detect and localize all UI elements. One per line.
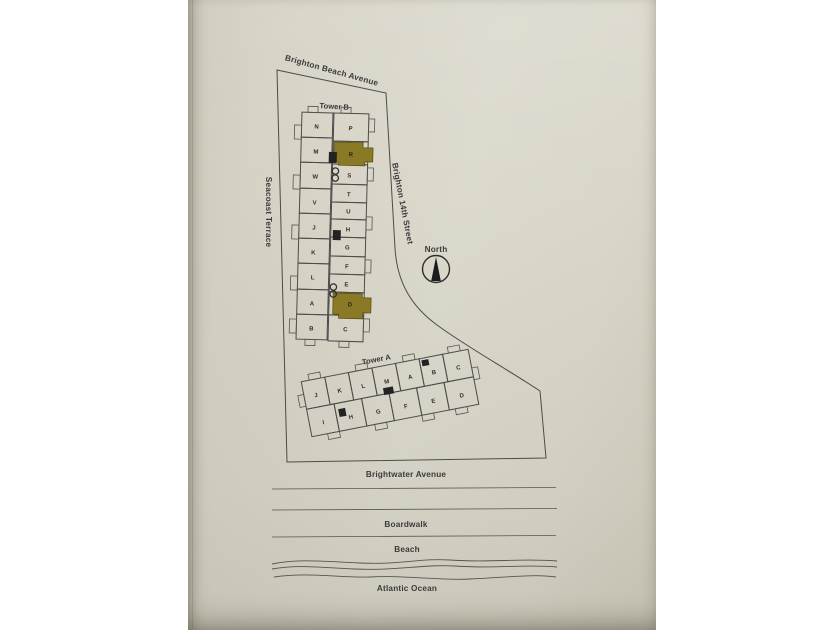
unit-label: W — [312, 174, 318, 180]
balcony — [472, 367, 480, 380]
unit-label: L — [311, 275, 315, 281]
unit-label: C — [343, 327, 348, 333]
tower-b-label: Tower B — [319, 101, 349, 112]
tower-a-plan: Tower A — [293, 336, 486, 443]
unit-label: F — [345, 264, 349, 270]
balcony — [305, 339, 315, 345]
unit-label: S — [347, 173, 351, 179]
shoreline-wave — [274, 575, 556, 579]
unit-label: T — [347, 192, 351, 198]
unit-label: K — [337, 388, 343, 395]
unit-label: H — [348, 415, 353, 422]
elevator-mark — [333, 230, 341, 240]
north-compass: North — [423, 245, 450, 283]
unit-label: N — [314, 124, 318, 130]
beach-label: Beach — [394, 545, 420, 554]
tower-b-plan: Tower B — [289, 100, 376, 348]
tower-b-core-marks — [325, 152, 343, 298]
unit-label: J — [312, 225, 315, 231]
balcony — [328, 431, 341, 439]
balcony — [363, 319, 369, 332]
unit-label: G — [345, 245, 350, 251]
north-label: North — [425, 245, 448, 254]
balcony — [339, 341, 349, 347]
unit-label: P — [348, 126, 352, 132]
balcony — [455, 407, 468, 415]
balcony — [292, 225, 299, 239]
unit-label: K — [311, 250, 316, 256]
unit-label: V — [312, 200, 316, 206]
elevator-mark — [338, 408, 346, 417]
balcony — [293, 175, 300, 189]
unit-label: A — [408, 374, 414, 381]
unit-label: U — [346, 209, 350, 215]
tower-a-bottom-row — [307, 377, 479, 437]
street-line — [272, 509, 557, 511]
balcony — [365, 260, 371, 273]
boardwalk-label: Boardwalk — [384, 520, 427, 529]
balcony — [308, 106, 318, 112]
stair-mark — [332, 175, 339, 182]
ocean-label: Atlantic Ocean — [377, 584, 437, 593]
balcony — [402, 354, 415, 362]
balcony — [290, 276, 297, 290]
boardwalk-line — [272, 536, 556, 538]
unit-label: B — [309, 326, 314, 332]
street-label-seacoast-terrace: Seacoast Terrace — [264, 177, 273, 248]
balcony — [308, 372, 321, 380]
unit-label: D — [459, 393, 465, 400]
unit-label: A — [310, 301, 315, 307]
site-plan-drawing: Brighton Beach Avenue Brighton 14th Stre… — [0, 0, 840, 630]
unit-label: L — [361, 384, 366, 391]
stair-mark — [330, 284, 337, 291]
balcony — [422, 413, 435, 421]
tower-b-left-unit-labels: N M W V J K L A B — [308, 124, 319, 332]
balcony — [366, 217, 372, 230]
unit-label: F — [404, 404, 409, 411]
unit-label: I — [322, 420, 325, 426]
balcony — [294, 125, 301, 139]
waterfront: Boardwalk Beach Atlantic Ocean — [272, 488, 557, 594]
balcony — [447, 345, 460, 353]
unit-label: C — [456, 365, 462, 372]
unit-label: J — [314, 393, 318, 400]
shoreline-wave — [272, 566, 557, 570]
balcony — [367, 168, 373, 181]
shoreline-wave — [272, 560, 557, 564]
street-label-brighton-beach-avenue: Brighton Beach Avenue — [284, 53, 380, 87]
balcony — [289, 319, 296, 333]
unit-label: E — [344, 282, 348, 288]
stair-mark — [332, 168, 339, 175]
compass-needle-icon — [431, 257, 441, 281]
elevator-mark — [383, 386, 394, 395]
balcony — [375, 422, 388, 430]
elevator-mark — [421, 359, 429, 366]
street-label-brightwater-avenue: Brightwater Avenue — [366, 470, 447, 479]
elevator-mark — [329, 152, 337, 163]
balcony — [298, 394, 306, 407]
unit-label: E — [431, 399, 436, 406]
street-line — [272, 488, 556, 490]
balcony — [368, 119, 374, 132]
listing-photo-page: Brighton Beach Avenue Brighton 14th Stre… — [0, 0, 840, 630]
unit-label: M — [384, 379, 390, 386]
unit-label: H — [346, 227, 350, 233]
unit-label: B — [431, 370, 437, 377]
unit-label: M — [313, 149, 318, 155]
unit-label: G — [376, 409, 382, 416]
